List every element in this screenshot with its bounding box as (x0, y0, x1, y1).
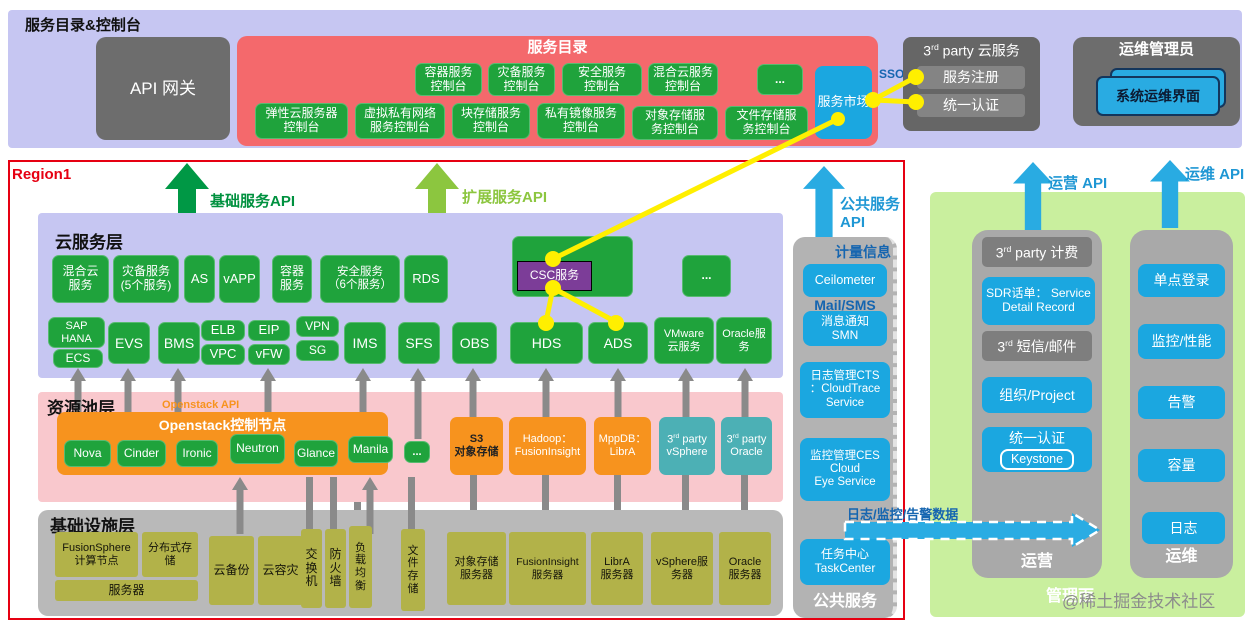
comp-ironic: Ironic (176, 440, 218, 467)
infra-fi-server: FusionInsight 服务器 (509, 532, 586, 605)
org-project-box: 组织/Project (982, 377, 1092, 413)
keystone-pill: Keystone (1000, 449, 1074, 470)
infra-lb: 负 载 均 衡 (349, 526, 372, 608)
ops-api-arrow (1013, 162, 1053, 230)
console-hybrid-cloud: 混合云服务 控制台 (648, 63, 718, 96)
comp-neutron: Neutron (230, 434, 285, 464)
svc-ecs: ECS (53, 349, 103, 368)
api-gateway-box: API 网关 (96, 37, 230, 140)
up-arrow-ads (610, 368, 626, 420)
infra-server: 服务器 (55, 580, 198, 601)
third-party-title: 3rd party 云服务 (903, 40, 1040, 60)
up-arrow-obs (465, 368, 481, 420)
svc-sap-hana: SAP HANA (48, 317, 105, 348)
smn-box: 消息通知 SMN (803, 311, 887, 346)
up-arrow-sfs (410, 368, 426, 439)
infra-dist-storage: 分布式存 储 (142, 532, 198, 577)
third-party-vsphere-label: 3rd party vSphere (667, 433, 708, 459)
infra-libra-server: LibrA 服务器 (591, 532, 643, 605)
line-filestorage (408, 477, 415, 534)
auth-label: 统一认证 (982, 429, 1092, 447)
svc-evs: EVS (108, 322, 150, 364)
hadoop-fusioninsight-box: Hadoop： FusionInsight (509, 417, 586, 475)
comp-glance: Glance (294, 440, 338, 467)
infra-obj-server: 对象存储 服务器 (447, 532, 506, 605)
svc-elb: ELB (201, 320, 245, 341)
infra-fusionsphere: FusionSphere 计算节点 (55, 532, 138, 577)
service-catalog-title: 服务目录 (237, 39, 878, 57)
infra-cloud-dr: 云容灾 (258, 536, 303, 605)
console-file-storage: 文件存储服 务控制台 (725, 106, 808, 140)
console-private-image: 私有镜像服务 控制台 (537, 103, 625, 139)
cts-box: 日志管理CTS ：CloudTrace Service (800, 362, 890, 418)
architecture-diagram: 服务目录&控制台 API 网关 服务目录 容器服务 控制台 灾备服务 控制台 安… (0, 0, 1248, 623)
om-monitor-box: 监控/性能 (1138, 324, 1225, 359)
billing-label: 3rd party 计费 (996, 244, 1078, 261)
console-vpc: 虚拟私有网络 服务控制台 (355, 103, 445, 139)
basic-api-label: 基础服务API (210, 190, 295, 211)
up-arrow-oracle (737, 368, 753, 420)
up-arrow-vmware (678, 368, 694, 420)
region1-label: Region1 (12, 166, 71, 183)
third-party-oracle-label: 3rd party Oracle (727, 433, 767, 459)
up-arrow-hds (538, 368, 554, 420)
sdr-box: SDR话单： Service Detail Record (982, 277, 1095, 325)
svc-vpc: VPC (201, 344, 245, 365)
svc-ims: IMS (344, 322, 386, 364)
svc-ads: ADS (588, 322, 648, 364)
operation-label: 运营 (972, 551, 1102, 573)
public-api-label: 公共服务 API (840, 193, 900, 231)
svc-container: 容器 服务 (272, 255, 312, 303)
service-market-box: 服务市场 (815, 66, 872, 139)
csc-service-box: CSC服务 (517, 261, 592, 291)
svc-rds: RDS (404, 255, 448, 303)
openstack-api-label: Openstack API (162, 399, 239, 411)
comp-cinder: Cinder (117, 440, 166, 467)
svc-vpn: VPN (296, 316, 339, 337)
comp-ellipsis: ... (404, 441, 430, 463)
om-capacity-box: 容量 (1138, 449, 1225, 482)
svc-vmware: VMware 云服务 (654, 317, 714, 364)
ops-api-label: 运营 API (1048, 172, 1107, 193)
svc-hybrid-cloud: 混合云 服务 (52, 255, 109, 303)
third-party-oracle-box: 3rd party Oracle (721, 417, 772, 475)
openstack-controller-title: Openstack控制节点 (57, 415, 388, 435)
svc-obs: OBS (452, 322, 497, 364)
ceilometer-box: Ceilometer (803, 264, 887, 297)
mail-sms-label: Mail/SMS (793, 298, 897, 313)
ops-admin-title: 运维管理员 (1073, 41, 1240, 59)
unified-auth-box: 统一认证 (917, 94, 1025, 117)
s3-object-storage-box: S3 对象存储 (450, 417, 503, 475)
svc-eip: EIP (248, 320, 290, 341)
console-ecs: 弹性云服务器 控制台 (255, 103, 348, 139)
svc-oracle: Oracle服 务 (716, 317, 772, 364)
public-api-arrow (803, 166, 845, 238)
console-ellipsis: ... (757, 64, 803, 95)
cloud-layer-title: 云服务层 (55, 228, 123, 253)
svc-vfw: vFW (248, 344, 290, 365)
svc-hds: HDS (510, 322, 583, 364)
om-alarm-box: 告警 (1138, 386, 1225, 419)
infra-cloud-backup: 云备份 (209, 536, 254, 605)
svc-as: AS (184, 255, 215, 303)
infra-firewall: 防 火 墙 (325, 529, 346, 608)
data-arrow-label: 日志/监控/告警数据 (847, 504, 958, 523)
infra-oracle-server: Oracle 服务器 (719, 532, 771, 605)
sso-label: SSO (879, 67, 904, 81)
watermark: @稀土掘金技术社区 (1062, 587, 1215, 612)
line-firewall (330, 477, 337, 534)
ops-console-box: 系统运维界面 (1096, 76, 1220, 116)
infra-switch: 交 换 机 (301, 529, 322, 608)
third-party-vsphere-box: 3rd party vSphere (659, 417, 715, 475)
comp-nova: Nova (64, 440, 111, 467)
line-switch (306, 477, 313, 534)
mppdb-libra-box: MppDB： LibrA (594, 417, 651, 475)
console-security-service: 安全服务 控制台 (562, 63, 642, 96)
om-api-arrow (1150, 160, 1190, 228)
ces-box: 监控管理CES Cloud Eye Service (800, 438, 890, 501)
svc-vapp: vAPP (219, 255, 260, 303)
om-label: 运维 (1130, 546, 1233, 568)
top-band-title: 服务目录&控制台 (25, 14, 141, 35)
metering-label: 计量信息 (793, 242, 891, 262)
console-dr-service: 灾备服务 控制台 (488, 63, 555, 96)
sms-label: 3rd 短信/邮件 (997, 338, 1076, 355)
cloud-ellipsis: ... (682, 255, 731, 297)
billing-box: 3rd party 计费 (982, 237, 1092, 267)
comp-manila: Manila (348, 436, 393, 463)
up-arrow-neutron (232, 477, 248, 534)
sms-box: 3rd 短信/邮件 (982, 331, 1092, 361)
om-api-label: 运维 API (1185, 163, 1244, 184)
taskcenter-box: 任务中心 TaskCenter (800, 539, 890, 585)
console-block-storage: 块存储服务 控制台 (452, 103, 530, 139)
infra-vsphere-server: vSphere服 务器 (651, 532, 713, 605)
svc-bms: BMS (158, 322, 200, 364)
console-container-service: 容器服务 控制台 (415, 63, 482, 96)
console-object-storage: 对象存储服 务控制台 (632, 106, 718, 140)
om-sso-box: 单点登录 (1138, 264, 1225, 297)
svc-dr: 灾备服务 (5个服务) (113, 255, 179, 303)
svc-sfs: SFS (398, 322, 440, 364)
service-register-box: 服务注册 (917, 66, 1025, 89)
third-party-title-text: 3rd party 云服务 (923, 42, 1019, 59)
public-services-label: 公共服务 (793, 591, 897, 613)
svc-security: 安全服务 （6个服务） (320, 255, 400, 303)
svc-sg: SG (296, 340, 339, 361)
om-log-box: 日志 (1142, 512, 1225, 544)
extended-api-label: 扩展服务API (462, 186, 547, 207)
infra-file-storage: 文 件 存 储 (401, 529, 425, 611)
